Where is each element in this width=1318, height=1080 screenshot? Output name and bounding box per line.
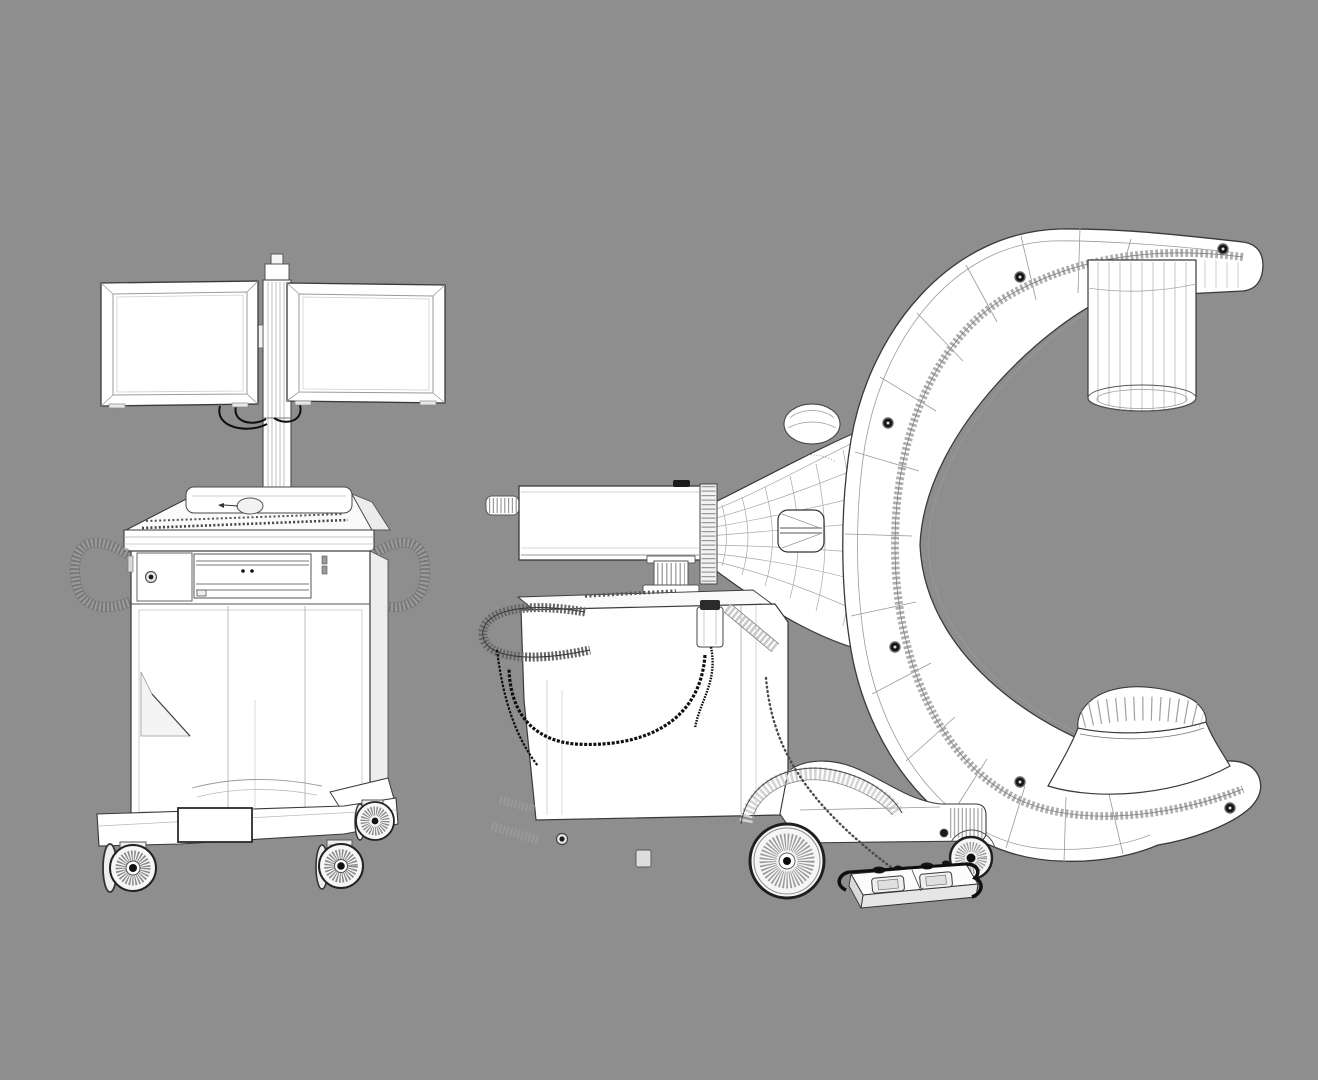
front-wheel <box>750 824 824 898</box>
horn-plate <box>778 510 824 552</box>
arm-end-cylinder <box>486 496 519 515</box>
bolt <box>1225 803 1235 813</box>
lower-door <box>139 610 362 812</box>
render-viewport[interactable] <box>0 0 1318 1080</box>
cabinet-side <box>370 551 388 816</box>
monitor-screen <box>303 297 429 390</box>
console-hood <box>186 487 352 513</box>
body-shell <box>521 604 788 820</box>
bolt <box>890 642 900 652</box>
pedal-right <box>919 872 952 890</box>
horn-knob <box>784 404 840 444</box>
leg-knob <box>940 829 948 837</box>
arm-connector <box>700 484 717 584</box>
cabinet <box>128 551 388 818</box>
arm-body <box>519 486 701 560</box>
arm-knob <box>673 480 690 487</box>
eject-button <box>197 590 206 596</box>
power-button-dot <box>149 575 154 580</box>
holder-cap <box>700 600 720 610</box>
caster-front-left <box>103 842 156 892</box>
mouse <box>237 498 263 514</box>
bolt <box>1015 777 1025 787</box>
body-foot <box>636 850 651 867</box>
cable-holder <box>697 607 723 647</box>
bolt <box>1015 272 1025 282</box>
pole-cap <box>265 264 289 282</box>
image-intensifier <box>1088 260 1196 411</box>
pedal-left <box>871 876 904 894</box>
bolt <box>1218 244 1228 254</box>
console-lip <box>124 530 374 551</box>
monitor-left <box>101 281 258 408</box>
monitor-right <box>287 283 445 405</box>
bolt <box>883 418 893 428</box>
monitor-screen <box>117 295 243 392</box>
base-bumper <box>178 808 252 842</box>
